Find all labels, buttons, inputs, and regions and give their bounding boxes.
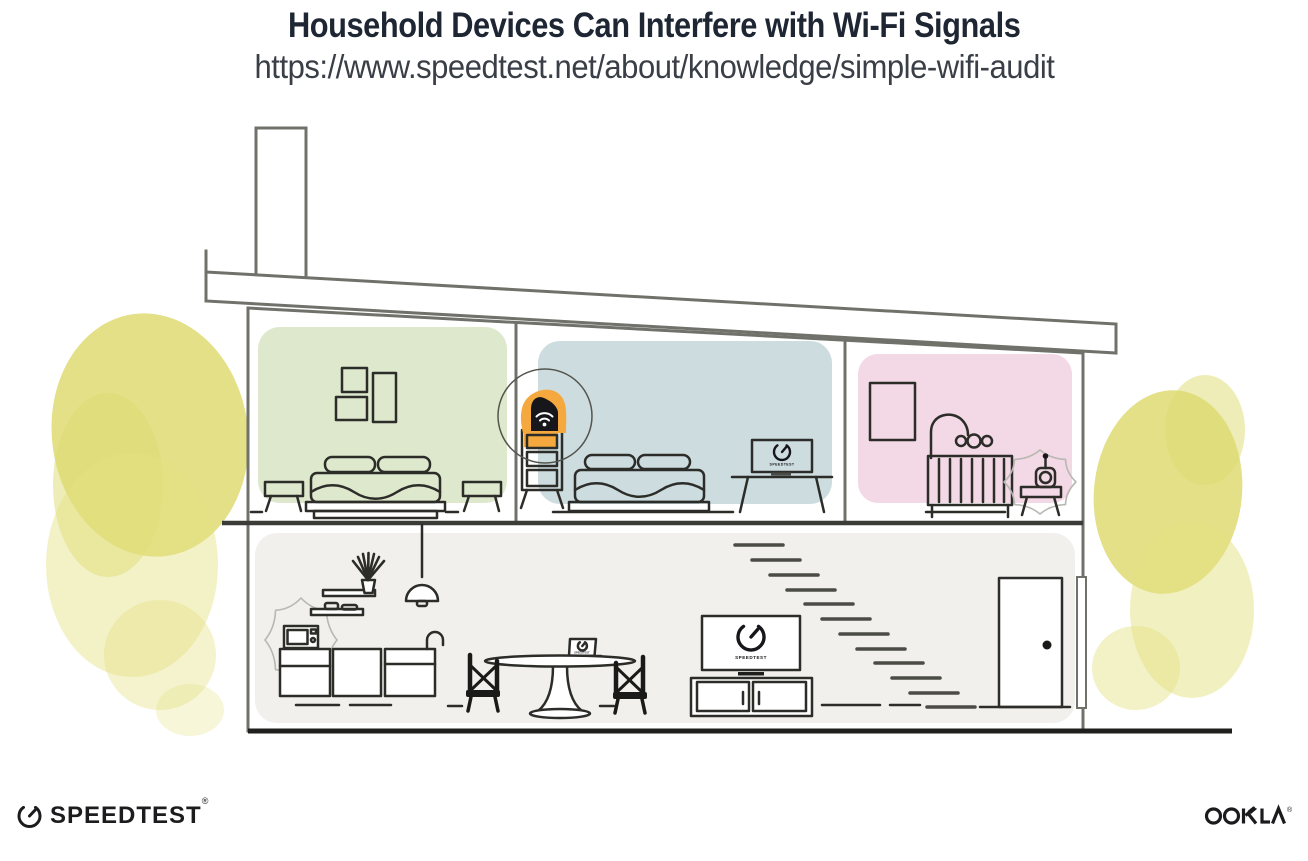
house-illustration: SPEEDTEST — [0, 0, 1308, 861]
bedroom-middle-background — [538, 341, 832, 504]
monitor-stand — [771, 473, 791, 476]
antenna-dot — [1043, 453, 1049, 459]
microwave-icon — [284, 626, 318, 648]
ookla-logo: ® — [1204, 800, 1296, 835]
downspout — [1077, 577, 1086, 708]
cabinet — [280, 649, 330, 696]
speedtest-trademark: ® — [202, 796, 209, 806]
monitor-screen-label: SPEEDTEST — [770, 463, 795, 467]
cabinet — [385, 649, 435, 696]
chimney — [256, 128, 306, 293]
doorknob — [1043, 641, 1052, 650]
bedroom-left-background — [258, 327, 507, 503]
floor-ticks — [296, 705, 920, 706]
laptop-screen-label: SPEEDTEST — [574, 653, 590, 655]
tv-screen-label: SPEEDTEST — [735, 655, 767, 660]
infographic-page: Household Devices Can Interfere with Wi-… — [0, 0, 1308, 861]
speedtest-gauge-icon — [16, 802, 43, 830]
tv-stand — [738, 672, 764, 676]
speedtest-wordmark: SPEEDTEST — [50, 802, 202, 829]
ookla-trademark: ® — [1287, 806, 1293, 814]
television: SPEEDTEST — [702, 616, 800, 676]
tree-left — [36, 301, 264, 736]
tree-right — [1084, 375, 1254, 710]
speedtest-logo: SPEEDTEST® — [16, 802, 208, 830]
cabinet — [333, 649, 381, 696]
ookla-wordmark-icon: ® — [1204, 800, 1296, 830]
media-console — [691, 678, 812, 716]
